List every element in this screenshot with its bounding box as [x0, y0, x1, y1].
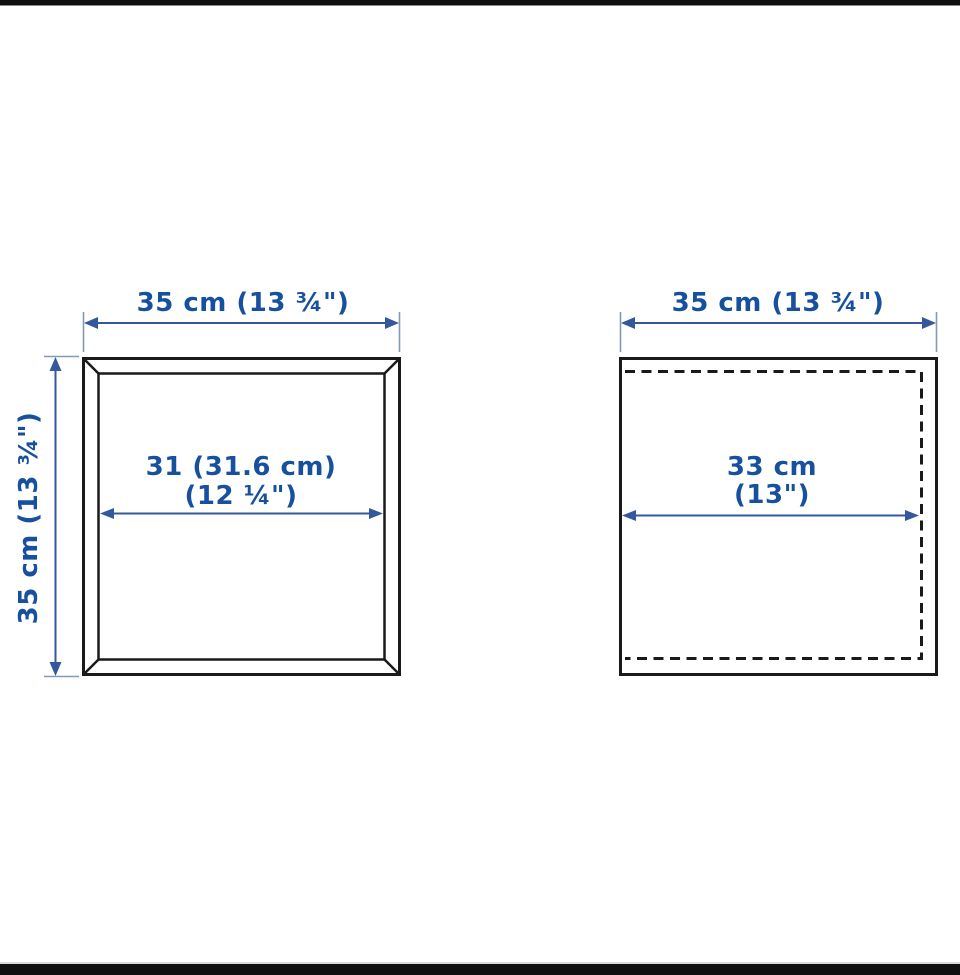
left-inner-width-label-line2: (12 ¼") — [185, 483, 298, 509]
right-inner-width-label-line1: 33 cm — [727, 454, 817, 480]
arrowhead-right-icon — [369, 508, 383, 519]
left-side-height-dimension — [44, 357, 79, 677]
letterbox-bottom-bar — [0, 962, 960, 975]
arrowhead-left-icon — [84, 317, 98, 329]
arrowhead-left-icon — [622, 510, 636, 521]
left-top-width-dimension — [84, 312, 400, 352]
arrowhead-up-icon — [50, 357, 62, 371]
diagram-linework — [0, 0, 960, 975]
left-frame-mitre-bottom-right — [385, 660, 400, 675]
left-frame-mitre-top-right — [385, 359, 400, 374]
right-inner-width-dimension — [622, 510, 919, 521]
right-top-width-dimension — [621, 312, 937, 352]
arrowhead-left-icon — [100, 508, 114, 519]
left-top-width-label: 35 cm (13 ¾") — [137, 290, 350, 316]
arrowhead-right-icon — [385, 317, 399, 329]
arrowhead-right-icon — [905, 510, 919, 521]
dimension-diagram: 35 cm (13 ¾") 35 cm (13 ¾") 31 (31.6 cm)… — [0, 0, 960, 975]
left-frame-mitre-top-left — [84, 359, 99, 374]
arrowhead-down-icon — [50, 662, 62, 676]
left-frame-inner-rect — [99, 374, 385, 660]
right-top-width-label: 35 cm (13 ¾") — [672, 290, 885, 316]
left-frame-mitre-bottom-left — [84, 660, 99, 675]
left-inner-width-label-line1: 31 (31.6 cm) — [146, 454, 337, 480]
left-cabinet-frame — [84, 359, 400, 675]
left-side-height-label: 35 cm (13 ¾") — [16, 412, 42, 625]
arrowhead-left-icon — [621, 317, 635, 329]
left-frame-outer-rect — [84, 359, 400, 675]
right-inner-width-label-line2: (13") — [734, 482, 810, 508]
arrowhead-right-icon — [922, 317, 936, 329]
